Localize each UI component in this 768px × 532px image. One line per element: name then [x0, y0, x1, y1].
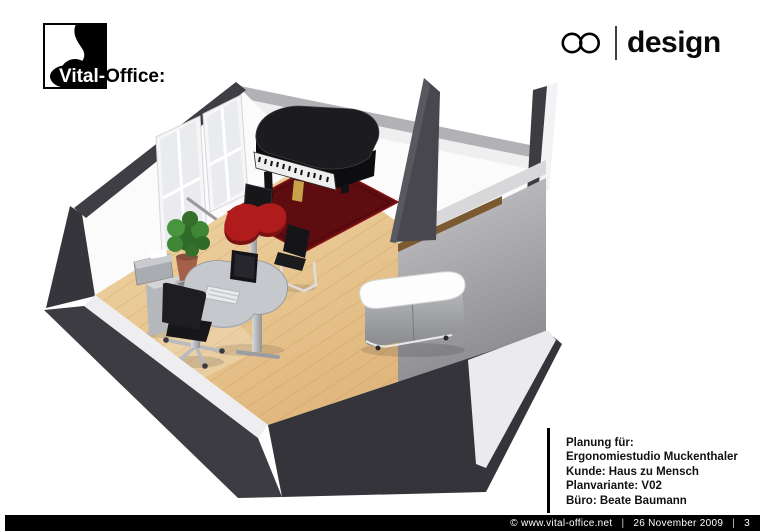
footer-copyright: © www.vital-office.net — [510, 518, 612, 529]
plan-info-line-3: Kunde: Haus zu Mensch — [566, 465, 757, 479]
footer-page-number: 3 — [744, 518, 750, 529]
plan-info-line-5: Büro: Beate Baumann — [566, 494, 757, 508]
footer-date: 26 November 2009 — [633, 518, 723, 529]
footer-bar: © www.vital-office.net | 26 November 200… — [5, 515, 760, 531]
footer-separator: | — [621, 518, 624, 529]
plan-info-line-4: Planvariante: V02 — [566, 479, 757, 493]
plan-info-line-1: Planung für: — [566, 436, 757, 450]
presentation-slide: Vital-Office: design — [0, 0, 768, 532]
plan-info: Planung für: Ergonomiestudio Muckenthale… — [547, 428, 757, 513]
piano-pedal — [292, 180, 304, 202]
footer-separator-2: | — [732, 518, 735, 529]
window-2 — [203, 95, 248, 212]
plan-info-line-2: Ergonomiestudio Muckenthaler — [566, 450, 757, 464]
desk-monitor — [230, 250, 258, 283]
